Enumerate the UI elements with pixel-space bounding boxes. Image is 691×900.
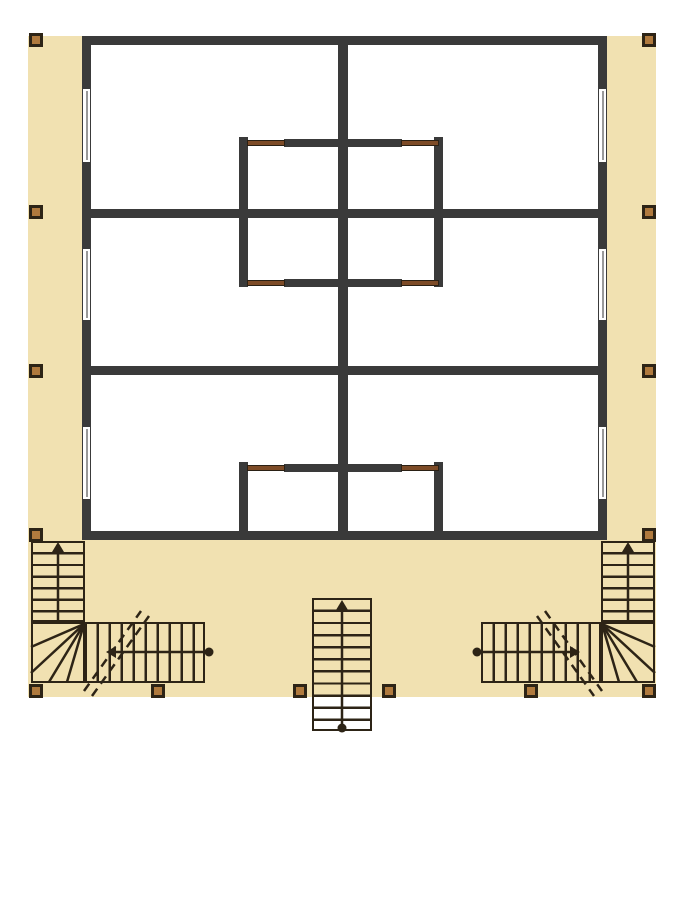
deck-post-core — [645, 687, 653, 695]
door-leaf — [401, 140, 439, 146]
deck-post — [642, 684, 656, 698]
door-leaf — [401, 280, 439, 286]
window — [82, 426, 91, 500]
wall-upper-core-top-mid — [284, 139, 402, 147]
deck-post — [642, 205, 656, 219]
door-leaf — [247, 280, 285, 286]
door-leaf — [247, 465, 285, 471]
stair-winder-tread — [31, 622, 85, 683]
deck-post — [642, 528, 656, 542]
deck-post-core — [32, 208, 40, 216]
door-leaf — [401, 465, 439, 471]
window-pane-line — [602, 429, 604, 497]
window — [598, 426, 607, 500]
wall-upper-core-left — [239, 137, 248, 287]
deck-post — [293, 684, 307, 698]
deck-post-core — [385, 687, 393, 695]
deck-post-core — [645, 36, 653, 44]
deck-post-core — [32, 687, 40, 695]
wall-lower-core-right — [434, 462, 443, 540]
window-pane-line — [602, 91, 604, 160]
deck-post-core — [645, 367, 653, 375]
window-pane-line — [86, 429, 88, 497]
deck-post — [151, 684, 165, 698]
deck-post-core — [154, 687, 162, 695]
deck-post — [642, 364, 656, 378]
deck-post-core — [32, 367, 40, 375]
wall-upper-core-bottom-mid — [284, 279, 402, 287]
deck-post-core — [32, 36, 40, 44]
deck-post-core — [645, 531, 653, 539]
stair-run — [31, 541, 85, 622]
floor-plan-canvas — [0, 0, 691, 900]
wall-lower-core-top-mid — [284, 464, 402, 472]
deck-post — [29, 528, 43, 542]
stair-run — [481, 622, 601, 683]
window-pane-line — [86, 91, 88, 160]
wall-upper-core-right — [434, 137, 443, 287]
window — [82, 88, 91, 163]
window-pane-line — [86, 251, 88, 318]
deck-post — [642, 33, 656, 47]
deck-post-core — [527, 687, 535, 695]
window — [598, 248, 607, 321]
wall-lower-core-left — [239, 462, 248, 540]
deck-post — [524, 684, 538, 698]
stair-run — [85, 622, 205, 683]
stair-run — [601, 541, 655, 622]
stair-winder-tread — [601, 622, 655, 683]
wall-cross-wall-lower — [82, 366, 607, 375]
wall-cross-wall-upper — [82, 209, 607, 218]
window — [598, 88, 607, 163]
door-leaf — [247, 140, 285, 146]
deck-post — [29, 364, 43, 378]
stair-run — [312, 598, 372, 731]
deck-post — [29, 205, 43, 219]
deck-post-core — [32, 531, 40, 539]
window — [82, 248, 91, 321]
deck-post — [29, 33, 43, 47]
deck-post — [382, 684, 396, 698]
deck-post — [29, 684, 43, 698]
deck-post-core — [645, 208, 653, 216]
deck-post-core — [296, 687, 304, 695]
window-pane-line — [602, 251, 604, 318]
